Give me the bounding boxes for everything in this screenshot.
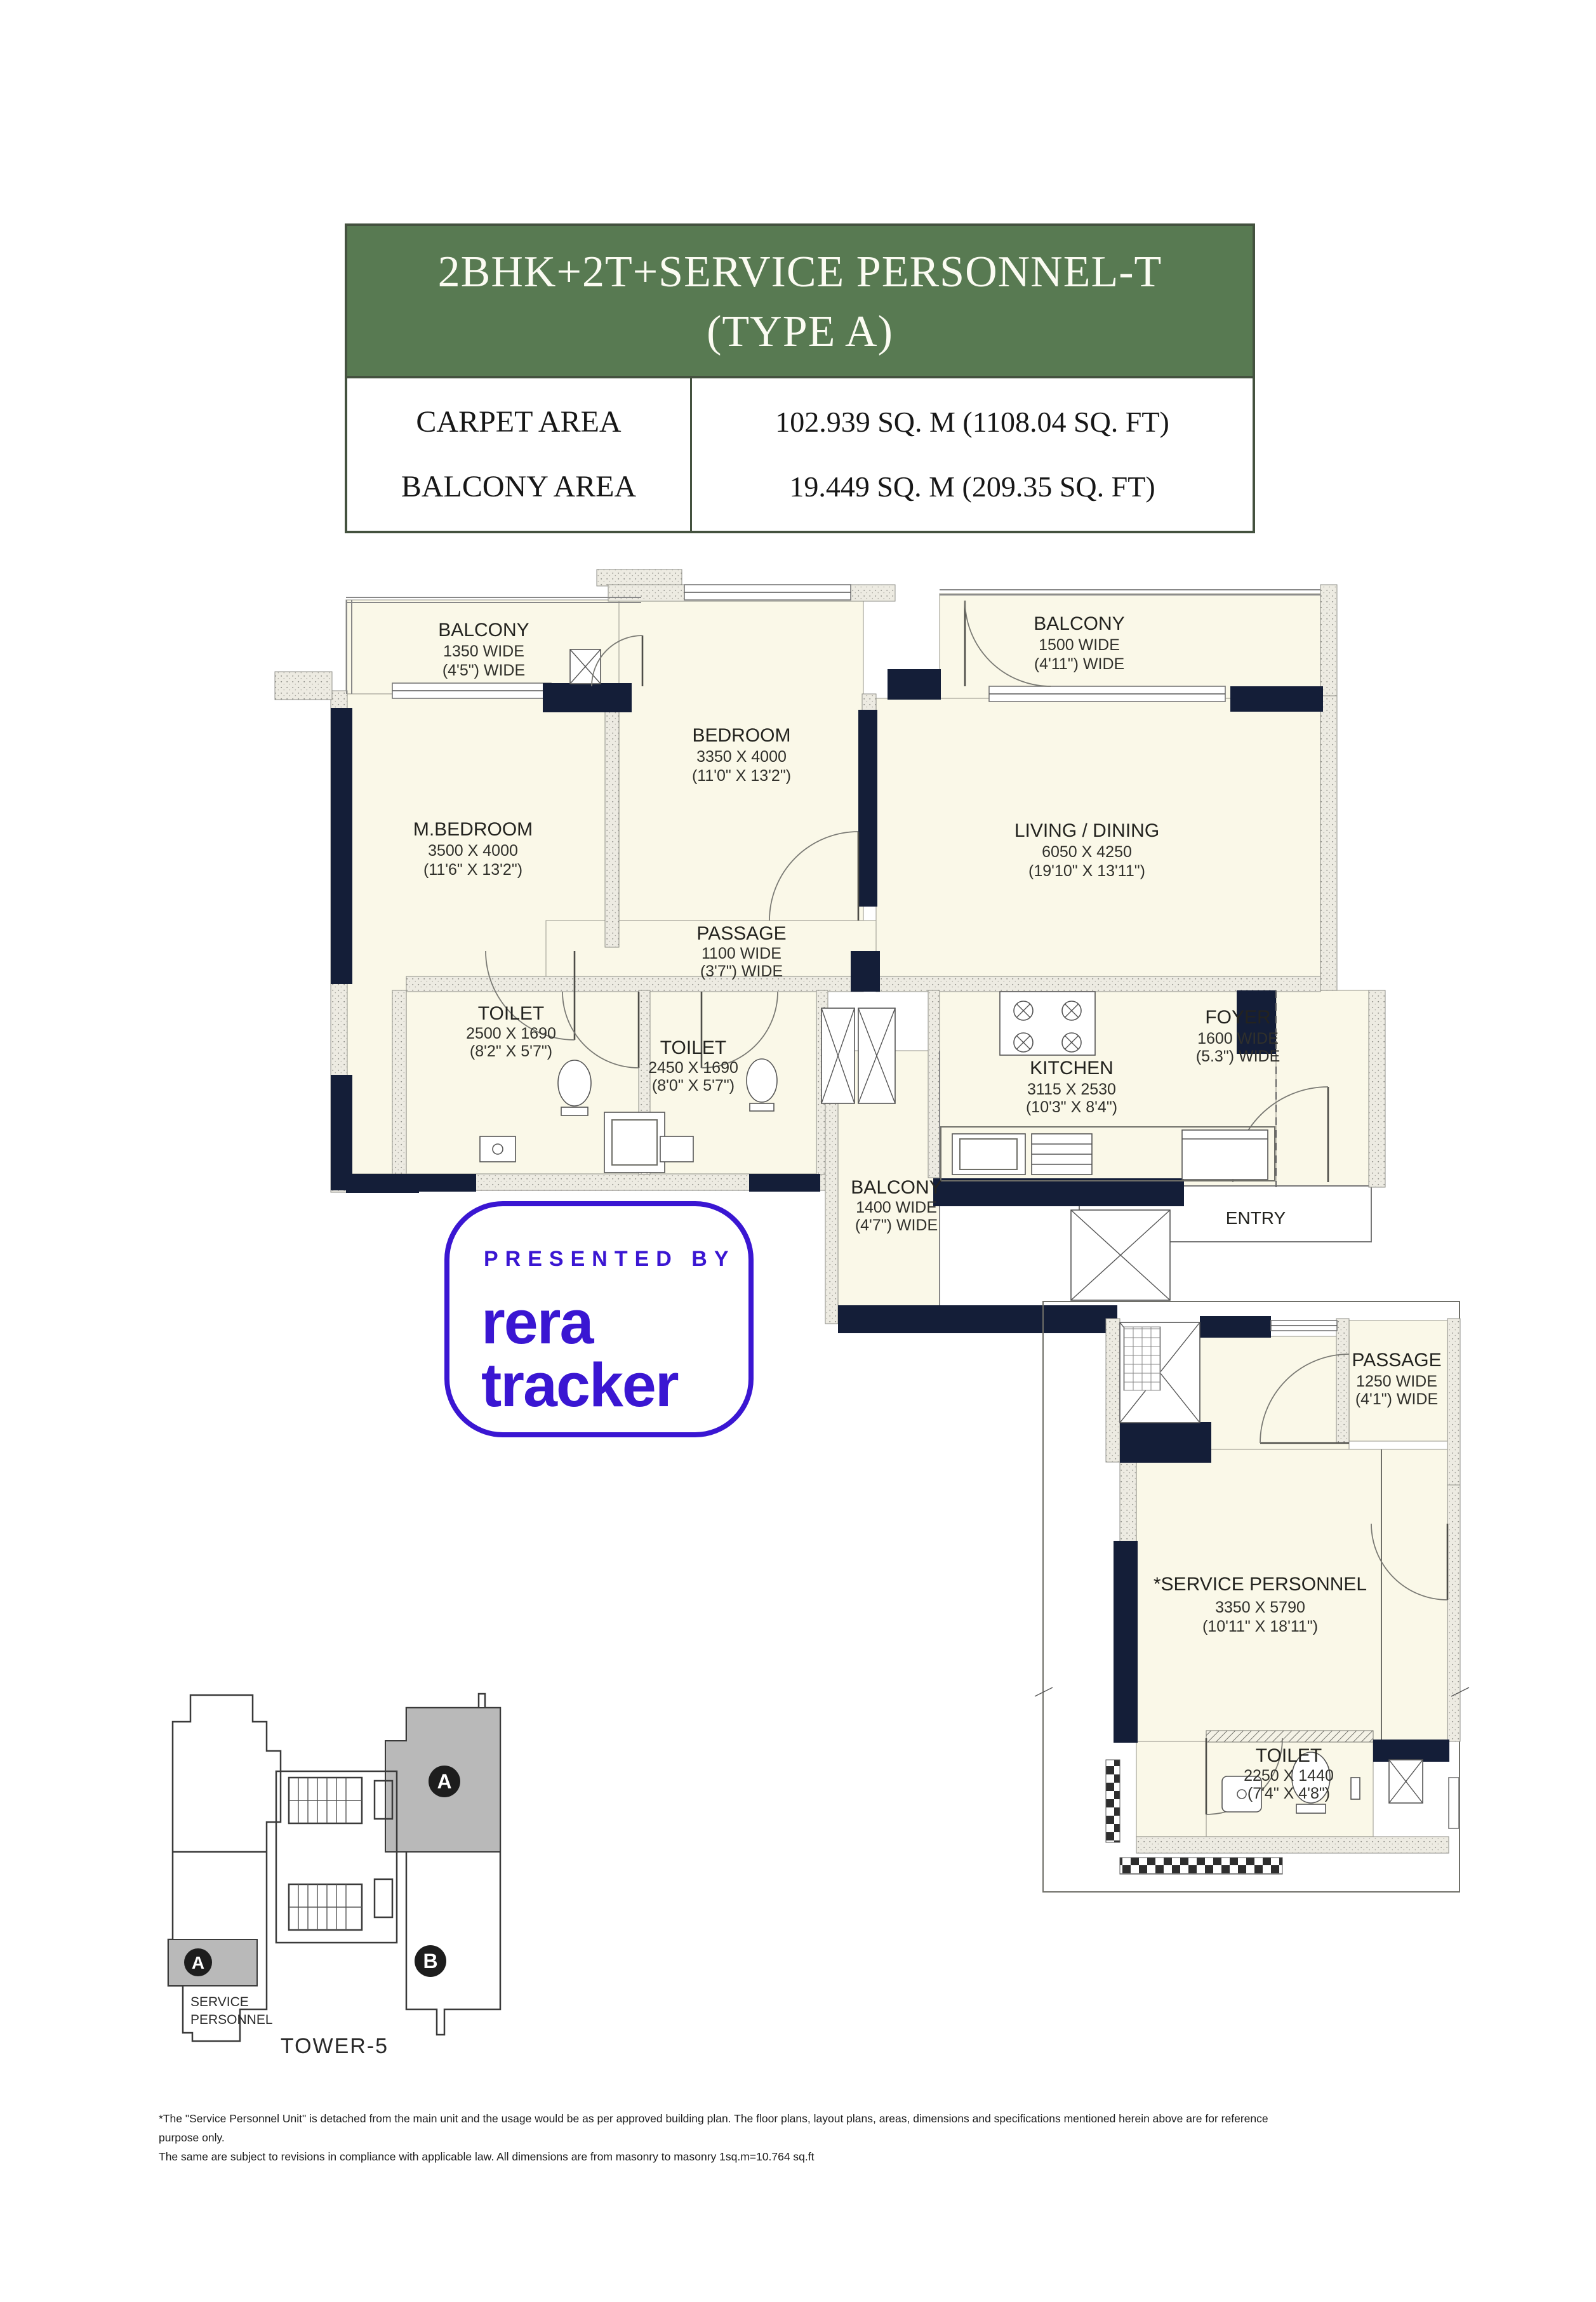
service-unit-plan: PASSAGE 1250 WIDE (4'1") WIDE *SERVICE P… <box>1035 1301 1469 1892</box>
room-name: LIVING / DINING <box>1014 820 1159 841</box>
room-dim-mm: 2450 X 1690 <box>648 1059 738 1077</box>
main-unit-plan: BALCONY 1350 WIDE (4'5") WIDE BEDROOM 33… <box>275 569 1385 1333</box>
brand-line-tracker: tracker <box>481 1354 748 1416</box>
room-dim-ft: (4'5") WIDE <box>442 662 525 679</box>
room-dim-mm: 1350 WIDE <box>443 642 524 660</box>
service-shaft <box>1120 1322 1200 1423</box>
room-label-master-bedroom: M.BEDROOM 3500 X 4000 (11'6" X 13'2") <box>413 819 533 879</box>
room-dim-ft: (11'6" X 13'2") <box>423 861 522 879</box>
room-name: BEDROOM <box>692 725 790 746</box>
room-label-kitchen: KITCHEN 3115 X 2530 (10'3" X 8'4") <box>1026 1058 1117 1116</box>
room-name: FOYER <box>1205 1007 1270 1028</box>
room-dim-mm: 3350 X 5790 <box>1215 1599 1305 1616</box>
room-label-balcony-top-right: BALCONY 1500 WIDE (4'11") WIDE <box>1034 613 1124 673</box>
presented-by-text: PRESENTED BY <box>484 1247 748 1272</box>
room-dim-mm: 2500 X 1690 <box>466 1025 556 1042</box>
room-dim-ft: (4'7") WIDE <box>855 1216 938 1234</box>
tower-key-plan: A B A SERVICE PERSONNEL TOWER-5 <box>168 1694 500 2058</box>
rera-tracker-logo: PRESENTED BY rera tracker <box>444 1201 754 1437</box>
room-label-balcony-middle: BALCONY 1400 WIDE (4'7") WIDE <box>851 1177 941 1234</box>
tower-left-wing <box>168 1695 281 2041</box>
room-name: TOILET <box>660 1037 726 1058</box>
room-dim-ft: (11'0" X 13'2") <box>692 767 791 785</box>
brand-wordmark: rera tracker <box>481 1291 748 1416</box>
tower-service-a-letter: A <box>192 1953 204 1973</box>
room-name: BALCONY <box>438 620 529 641</box>
service-room-label-passage: PASSAGE 1250 WIDE (4'1") WIDE <box>1352 1350 1441 1408</box>
tower-core <box>276 1771 397 1943</box>
room-dim-ft: (8'0" X 5'7") <box>652 1077 735 1094</box>
room-name: BALCONY <box>851 1177 941 1198</box>
room-dim-mm: 3350 X 4000 <box>696 748 787 766</box>
room-dim-ft: (19'10" X 13'11") <box>1028 862 1145 880</box>
room-dim-mm: 1100 WIDE <box>702 945 781 962</box>
service-duct <box>1389 1760 1423 1803</box>
tower-service-area <box>168 1939 257 1986</box>
room-name: TOILET <box>1256 1745 1322 1766</box>
room-dim-mm: 1600 WIDE <box>1197 1030 1279 1048</box>
room-dim-ft: (10'3" X 8'4") <box>1026 1098 1117 1116</box>
room-dim-mm: 3115 X 2530 <box>1027 1081 1116 1098</box>
tower-unit-b-letter: B <box>423 1950 437 1973</box>
tower-service-label-line1: SERVICE <box>190 1995 249 2009</box>
room-name: TOILET <box>478 1003 544 1024</box>
disclaimer-text: *The "Service Personnel Unit" is detache… <box>159 2109 1301 2166</box>
room-dim-ft: (8'2" X 5'7") <box>470 1042 552 1060</box>
room-name: BALCONY <box>1034 613 1124 634</box>
room-dim-mm: 1400 WIDE <box>856 1199 937 1216</box>
brand-line-rera: rera <box>481 1291 748 1354</box>
room-label-bedroom: BEDROOM 3350 X 4000 (11'0" X 13'2") <box>692 725 791 785</box>
disclaimer-line2: The same are subject to revisions in com… <box>159 2147 1301 2166</box>
tower-service-label-line2: PERSONNEL <box>190 2013 273 2027</box>
tower-name-label: TOWER-5 <box>281 2034 389 2058</box>
room-name: PASSAGE <box>1352 1350 1441 1371</box>
room-dim-mm: 2250 X 1440 <box>1244 1767 1334 1785</box>
entry-label: ENTRY <box>1226 1208 1286 1228</box>
room-name: KITCHEN <box>1030 1058 1114 1079</box>
room-name: *SERVICE PERSONNEL <box>1154 1574 1367 1595</box>
room-label-balcony-top-left: BALCONY 1350 WIDE (4'5") WIDE <box>438 620 529 679</box>
disclaimer-line1: *The "Service Personnel Unit" is detache… <box>159 2109 1301 2147</box>
room-dim-mm: 3500 X 4000 <box>428 842 518 860</box>
room-dim-ft: (3'7") WIDE <box>700 962 783 980</box>
floor-plan-drawing: BALCONY 1350 WIDE (4'5") WIDE BEDROOM 33… <box>0 0 1596 2302</box>
service-room-label-toilet: TOILET 2250 X 1440 (7'4" X 4'8") <box>1244 1745 1334 1802</box>
room-label-toilet-2: TOILET 2450 X 1690 (8'0" X 5'7") <box>648 1037 738 1094</box>
room-dim-ft: (5.3") WIDE <box>1196 1048 1280 1065</box>
floor-plan-page: 2BHK+2T+SERVICE PERSONNEL-T (TYPE A) CAR… <box>0 0 1596 2302</box>
room-label-passage: PASSAGE 1100 WIDE (3'7") WIDE <box>696 923 786 980</box>
room-dim-ft: (7'4" X 4'8") <box>1247 1785 1330 1802</box>
room-dim-mm: 6050 X 4250 <box>1042 843 1132 861</box>
room-dim-ft: (4'1") WIDE <box>1355 1390 1438 1408</box>
room-name: PASSAGE <box>696 923 786 944</box>
tower-unit-a-letter: A <box>437 1770 451 1793</box>
room-name: M.BEDROOM <box>413 819 533 840</box>
room-label-foyer: FOYER 1600 WIDE (5.3") WIDE <box>1196 1007 1280 1065</box>
room-dim-ft: (4'11") WIDE <box>1034 655 1124 673</box>
room-dim-mm: 1250 WIDE <box>1356 1373 1437 1390</box>
room-dim-mm: 1500 WIDE <box>1039 636 1120 654</box>
room-dim-ft: (10'11" X 18'11") <box>1202 1618 1318 1635</box>
room-label-toilet-1: TOILET 2500 X 1690 (8'2" X 5'7") <box>466 1003 556 1060</box>
